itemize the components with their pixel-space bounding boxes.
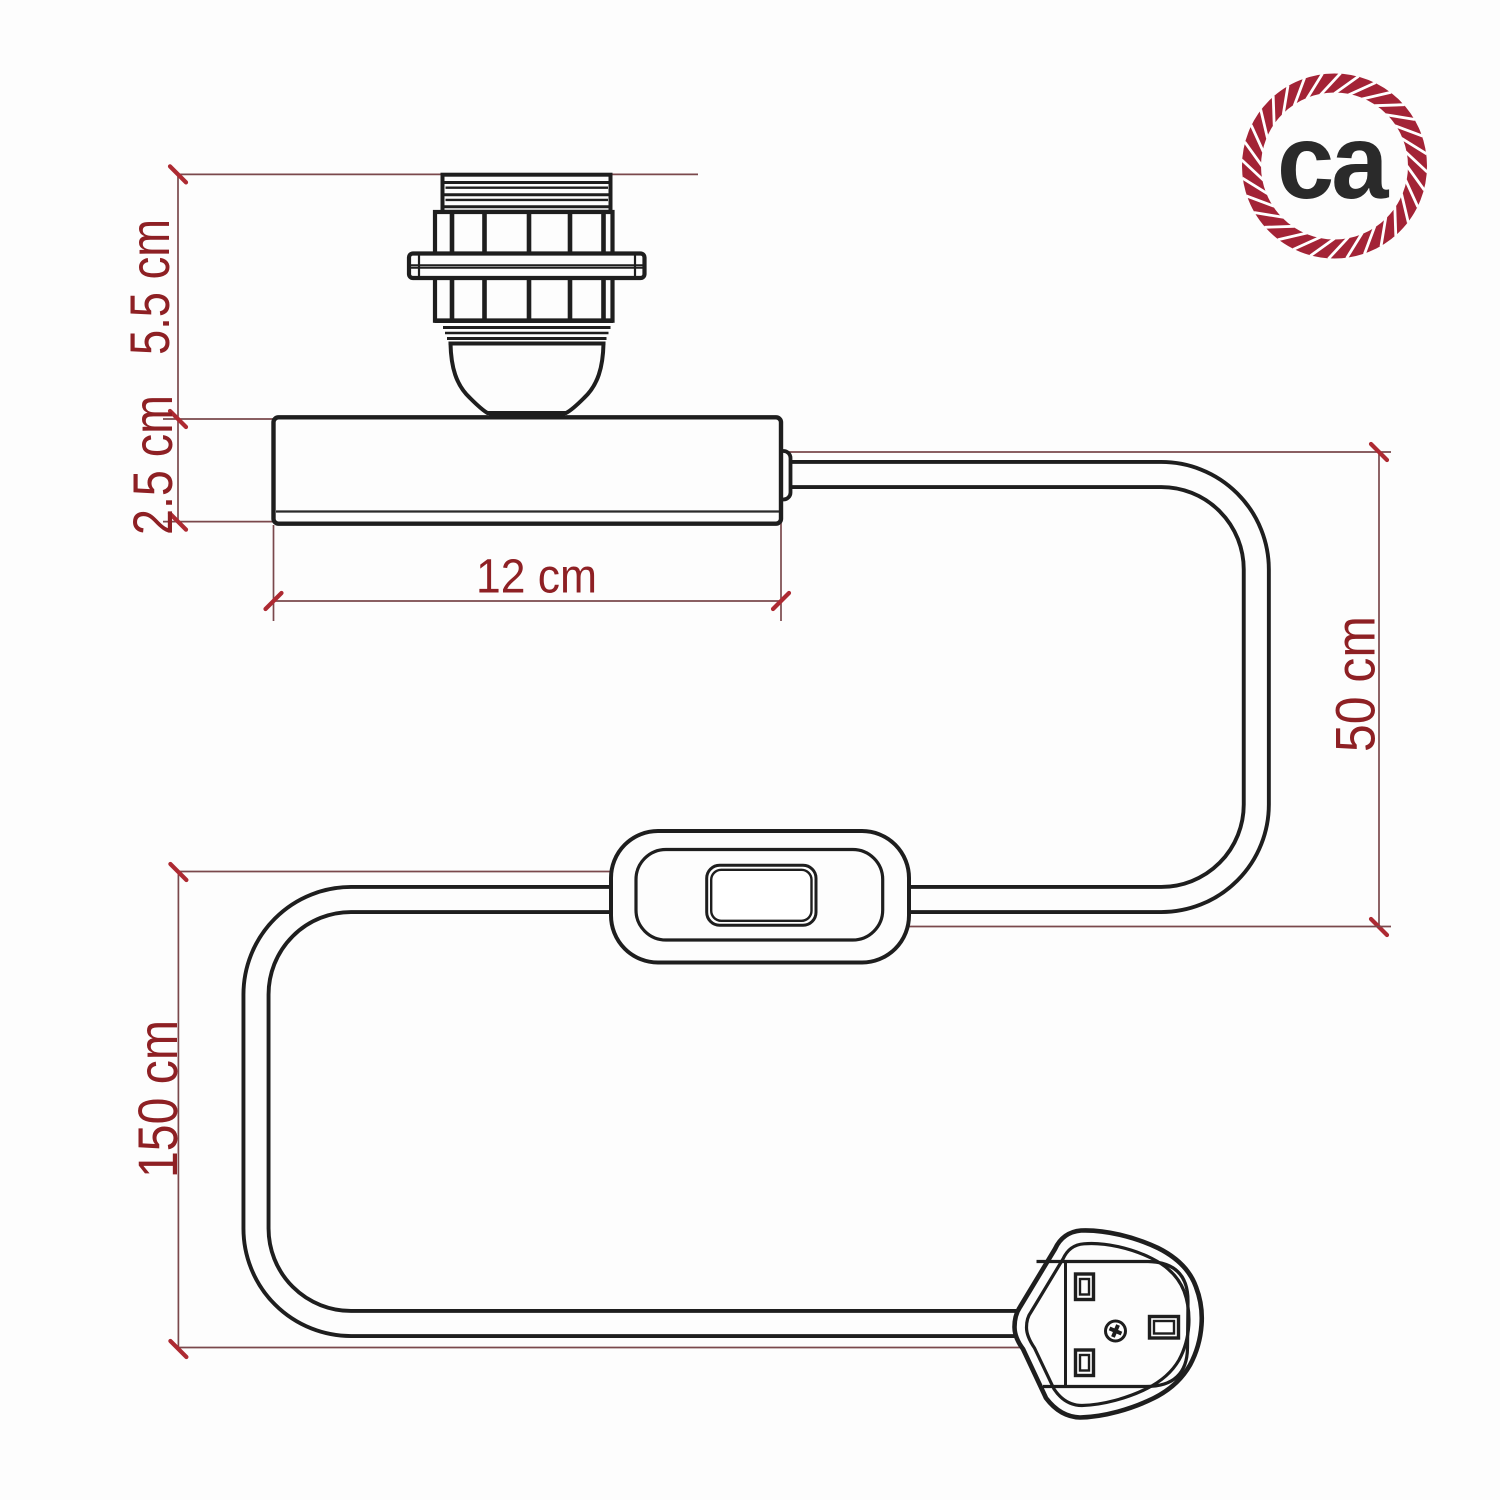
svg-text:50 cm: 50 cm [1324,616,1387,752]
svg-text:ca: ca [1277,103,1389,222]
svg-text:12 cm: 12 cm [476,551,597,604]
svg-text:150 cm: 150 cm [126,1020,189,1178]
svg-text:5.5 cm: 5.5 cm [118,219,181,355]
svg-text:2.5 cm: 2.5 cm [121,395,184,535]
